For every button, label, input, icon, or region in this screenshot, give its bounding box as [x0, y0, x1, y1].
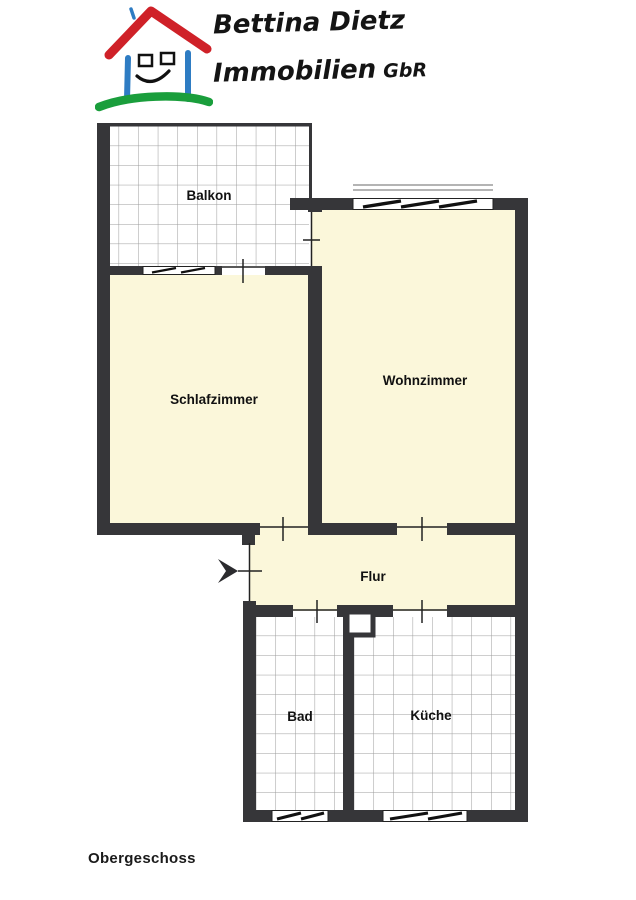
window-kueche: [383, 811, 467, 822]
balcony-top-rail: [99, 123, 312, 127]
room-label-kueche: Küche: [410, 708, 452, 723]
room-flur: [250, 523, 515, 611]
chimney-shaft: [347, 612, 373, 635]
floorplan-page: Bettina Dietz ImmobilienGbR: [0, 0, 636, 900]
room-wohnzimmer: [311, 210, 515, 523]
wall-schlaf-wohn: [308, 266, 322, 535]
balcony-right-rail: [309, 123, 312, 198]
room-label-schlafzimmer: Schlafzimmer: [170, 392, 259, 407]
room-label-wohnzimmer: Wohnzimmer: [383, 373, 468, 388]
window-bad: [272, 811, 328, 822]
window-schlafzimmer: [143, 267, 215, 275]
window-wohnzimmer: [353, 185, 493, 210]
floor-caption: Obergeschoss: [88, 850, 196, 867]
room-label-bad: Bad: [287, 709, 313, 724]
wall-right-exterior: [515, 198, 528, 822]
wall-left-exterior: [97, 123, 110, 535]
room-label-flur: Flur: [360, 569, 386, 584]
room-label-balkon: Balkon: [186, 188, 231, 203]
wall-bad-left: [243, 601, 256, 822]
entrance-arrow-icon: [218, 559, 238, 583]
floorplan-drawing: Balkon Schlafzimmer Wohnzimmer Flur Bad …: [0, 0, 636, 900]
